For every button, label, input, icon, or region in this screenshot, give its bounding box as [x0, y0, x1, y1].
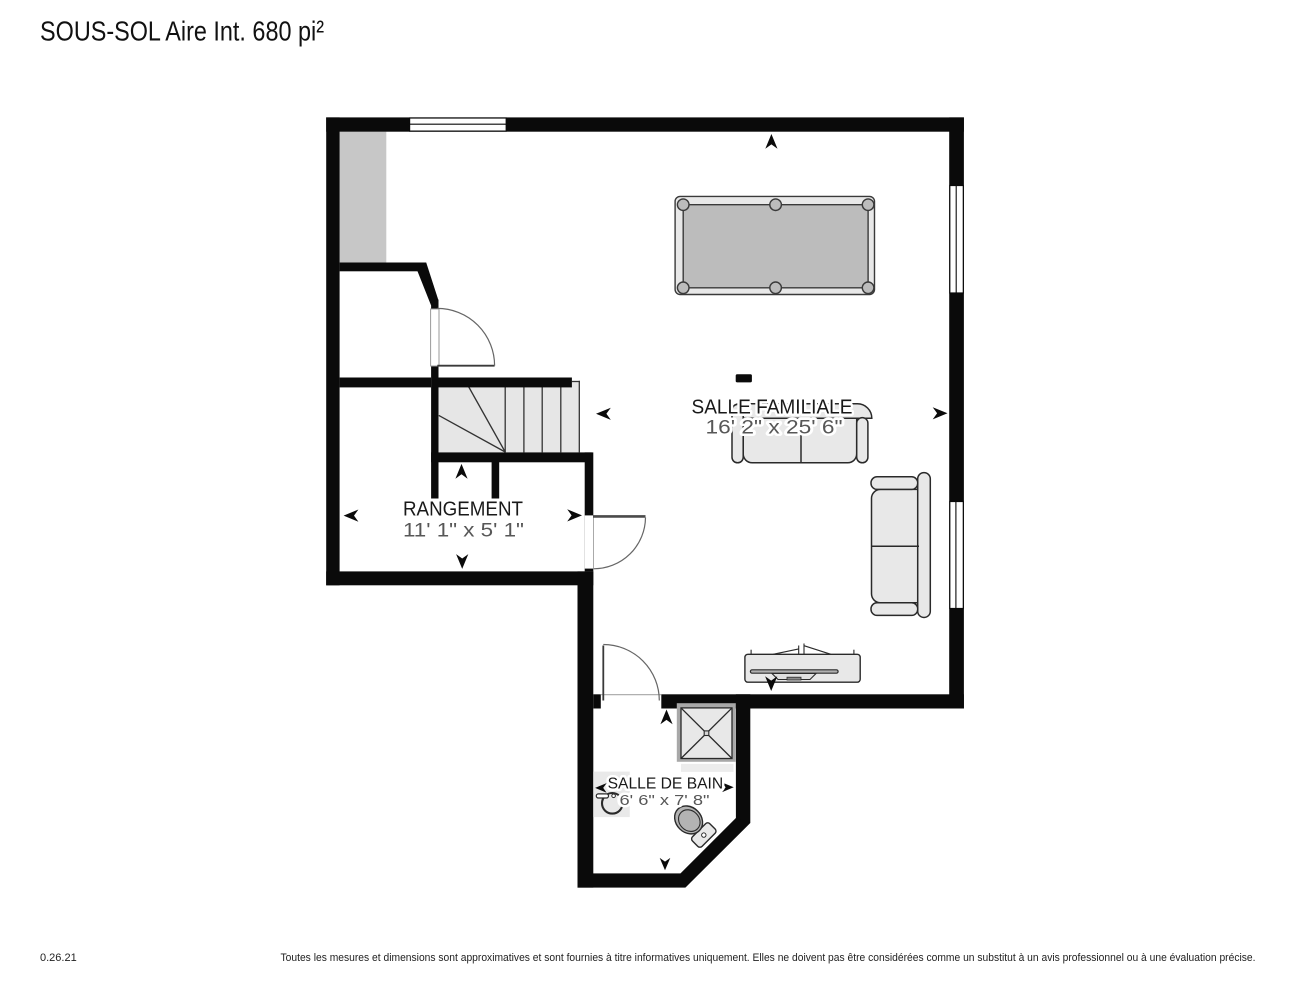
svg-text:Toutes les mesures et dimensio: Toutes les mesures et dimensions sont ap…	[281, 952, 1256, 964]
svg-text:RANGEMENT: RANGEMENT	[403, 499, 523, 521]
svg-text:SOUS-SOL Aire Int. 680 pi²: SOUS-SOL Aire Int. 680 pi²	[40, 16, 324, 47]
svg-text:11' 1" x 5' 1": 11' 1" x 5' 1"	[403, 521, 524, 542]
svg-text:SALLE FAMILIALE: SALLE FAMILIALE	[692, 397, 853, 419]
svg-text:6' 6" x 7' 8": 6' 6" x 7' 8"	[620, 793, 710, 809]
svg-text:16' 2" x 25' 6": 16' 2" x 25' 6"	[706, 418, 843, 439]
svg-text:0.26.21: 0.26.21	[40, 952, 77, 964]
svg-text:SALLE DE BAIN: SALLE DE BAIN	[608, 776, 724, 793]
